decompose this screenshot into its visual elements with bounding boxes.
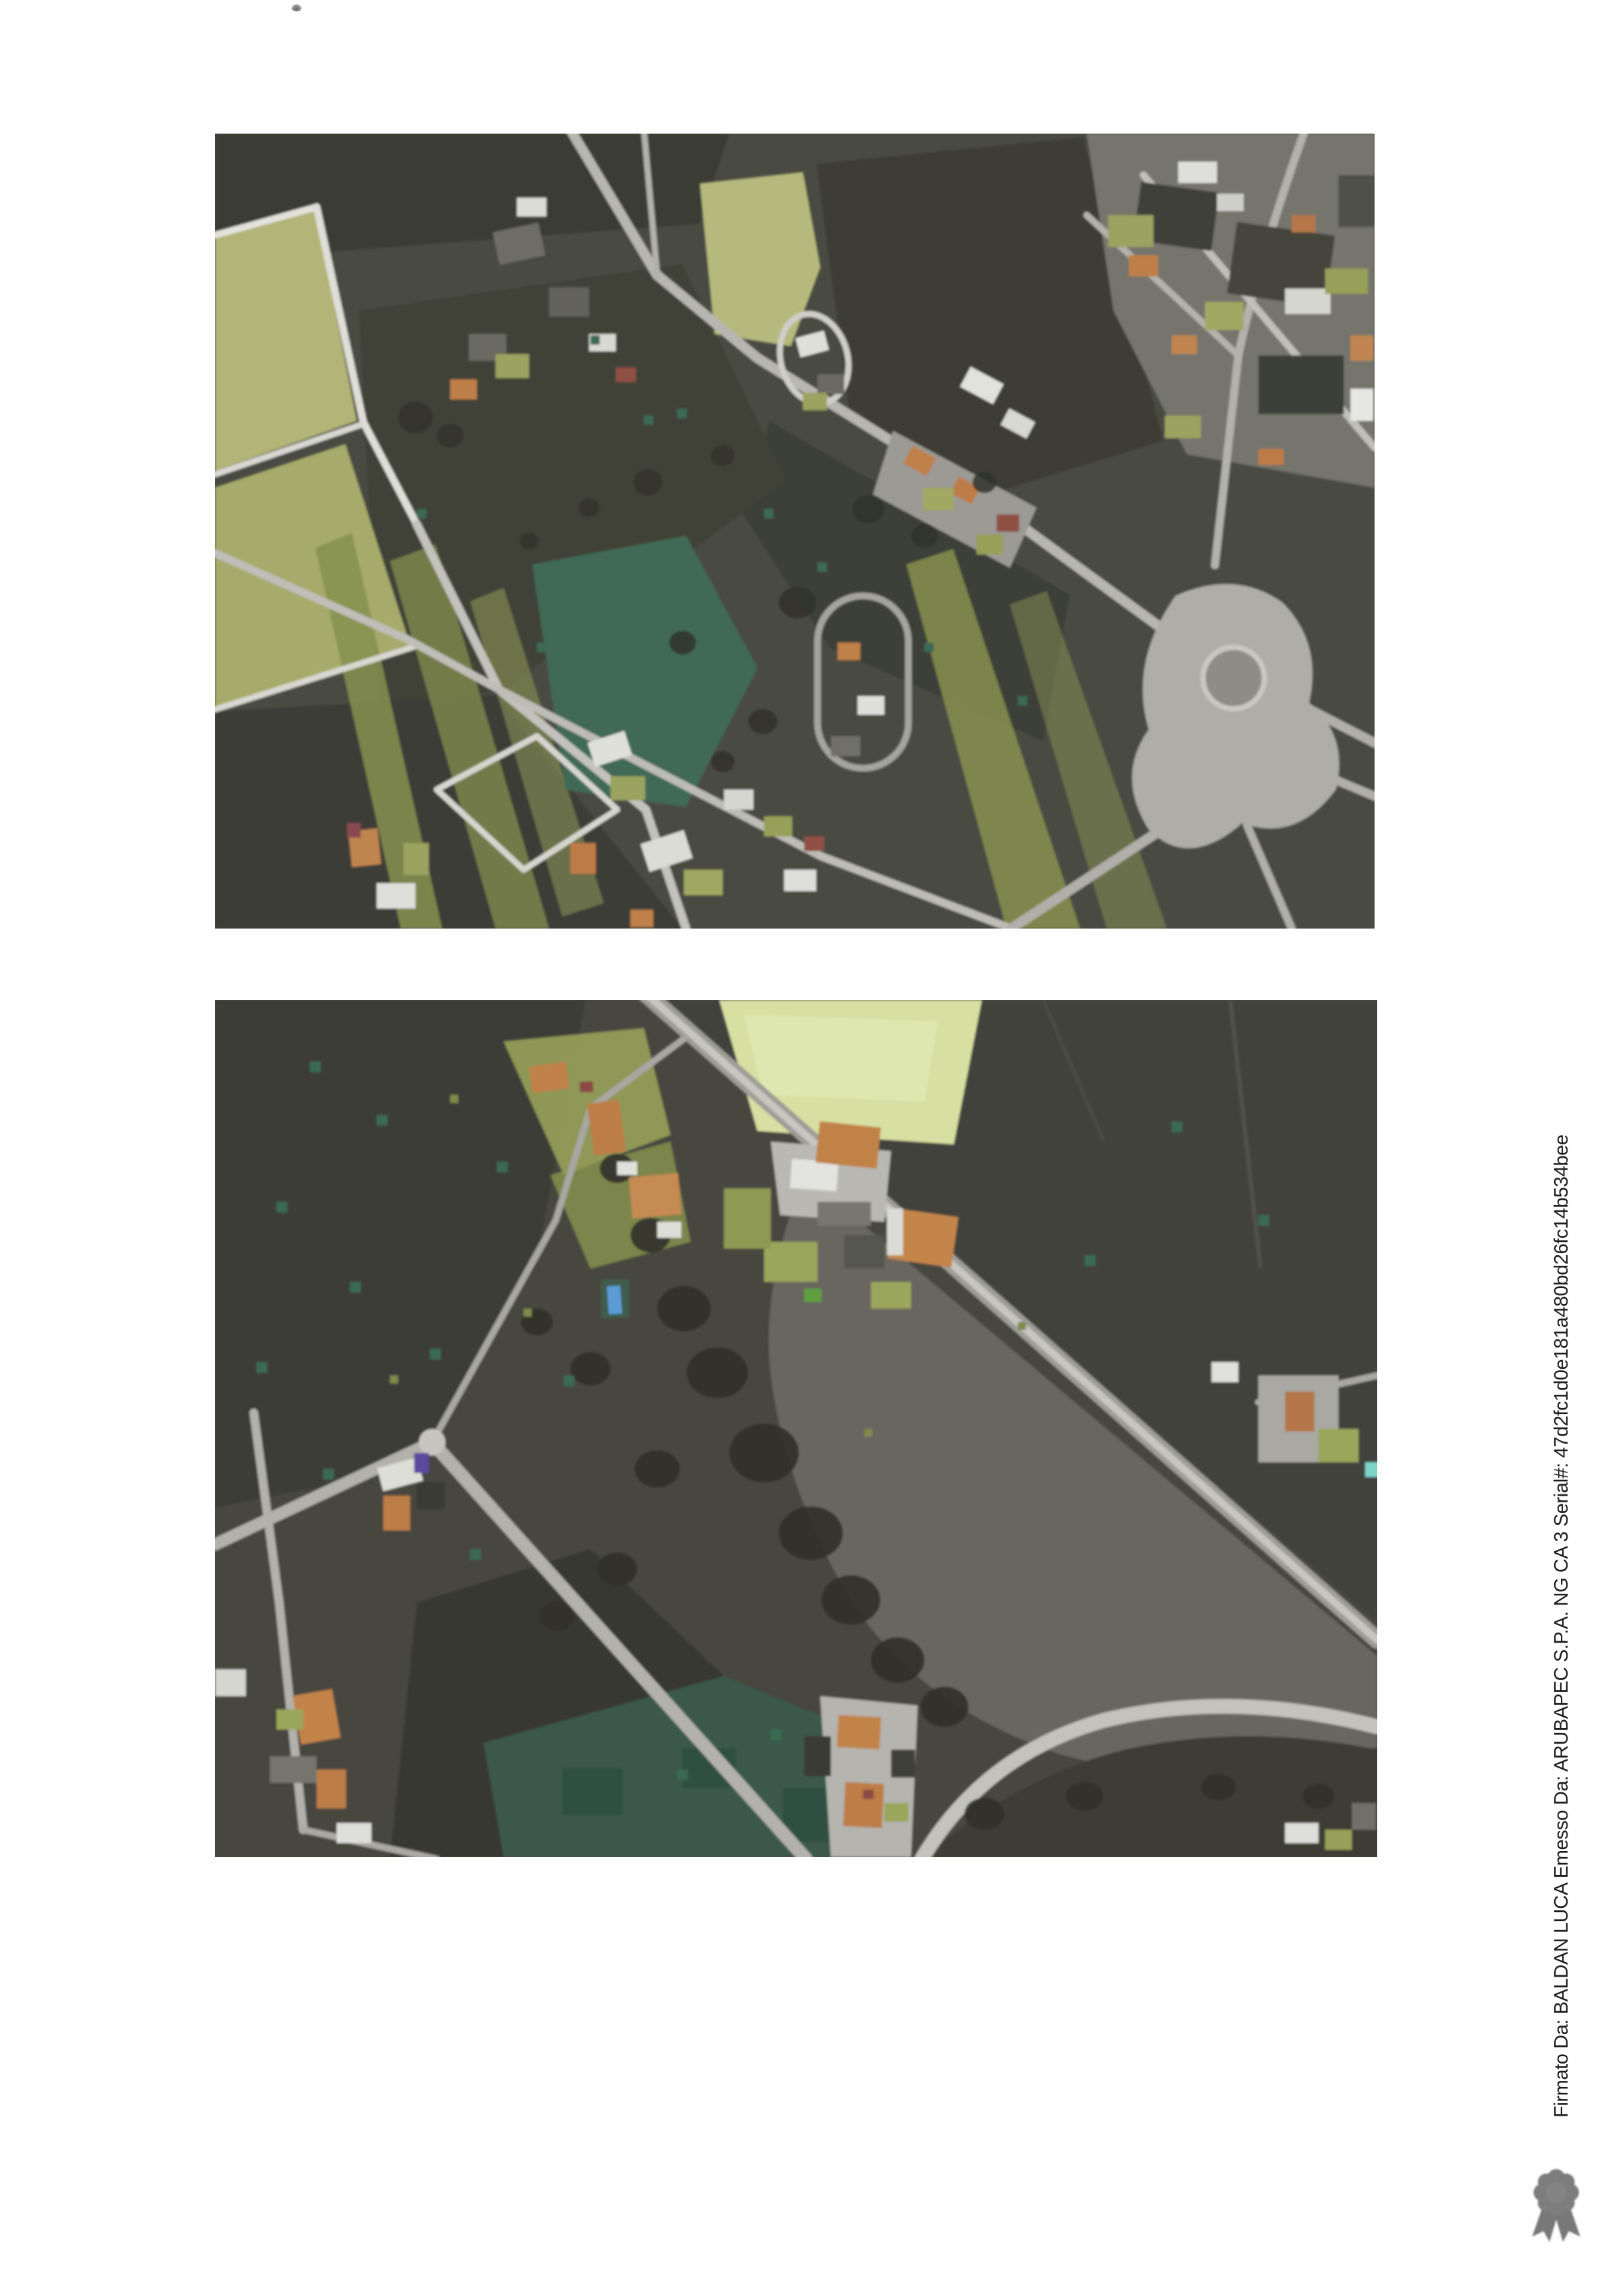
ribbon-rosette-icon bbox=[1523, 2163, 1590, 2247]
aerial-photo-top bbox=[215, 134, 1375, 929]
aerial-photo-top-graphic bbox=[215, 134, 1375, 929]
aerial-photo-bottom bbox=[215, 1000, 1377, 1857]
document-page: Firmato Da: BALDAN LUCA Emesso Da: ARUBA… bbox=[0, 0, 1609, 2296]
aerial-photo-bottom-graphic bbox=[215, 1000, 1377, 1857]
seal-medallion bbox=[1534, 2169, 1579, 2216]
scan-speck bbox=[291, 4, 302, 11]
signature-text: Firmato Da: BALDAN LUCA Emesso Da: ARUBA… bbox=[1551, 1152, 1578, 2118]
